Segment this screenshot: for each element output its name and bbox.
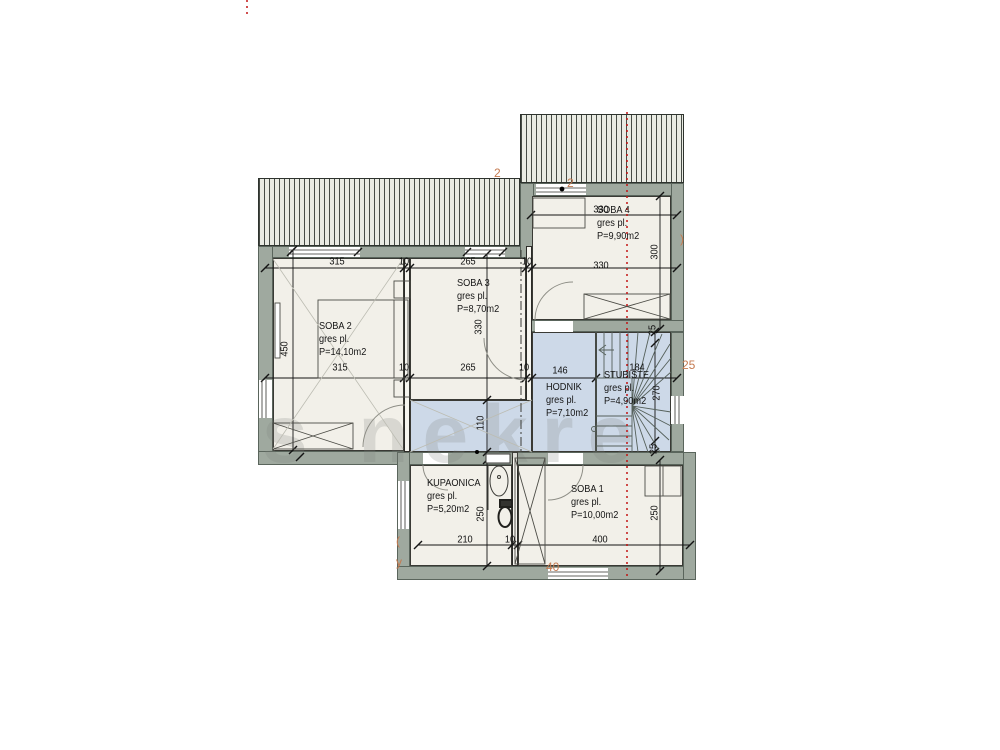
dim-label: 10 (522, 257, 532, 268)
room-label-soba3: SOBA 3gres pl.P=8,70m2 (457, 277, 499, 316)
roof-hatch-right (520, 114, 684, 183)
roof-hatch-left (258, 178, 520, 246)
room-label-soba1: SOBA 1gres pl.P=10,00m2 (571, 483, 618, 522)
annotation-remnant: 2 (567, 176, 574, 190)
window-top-soba2 (289, 247, 360, 257)
dim-label: 315 (329, 257, 344, 268)
dim-label: 146 (552, 366, 567, 377)
dim-label: 10 (519, 363, 529, 374)
dim-label: 10 (399, 363, 409, 374)
door-opening-soba4 (535, 321, 573, 332)
dim-label: 315 (332, 363, 347, 374)
door-opening-kupaonica (423, 453, 448, 464)
annotation-remnant: 40 (546, 560, 559, 574)
room-label-stubiste: STUBIŠTEgres pl.P=4,90m2 (604, 369, 649, 408)
dim-label: 400 (592, 535, 607, 546)
dim-label: 25 (649, 444, 660, 454)
dim-label: 330 (593, 205, 608, 216)
wall-right-lower (683, 452, 696, 580)
dim-label: 210 (457, 535, 472, 546)
dim-label: 300 (650, 244, 661, 259)
dim-label: 10 (399, 257, 409, 268)
room-label-kupaonica: KUPAONICAgres pl.P=5,20m2 (427, 477, 481, 516)
room-label-soba2: SOBA 2gres pl.P=14,10m2 (319, 320, 366, 359)
wall-right-upper (671, 183, 684, 332)
dim-label: 25 (648, 325, 659, 335)
annotation-remnant: 2 (494, 166, 501, 180)
room-floor-hodnik-ext (410, 400, 532, 452)
annotation-remnant: ) (680, 232, 684, 246)
annotation-remnant: y (396, 555, 402, 569)
wall-right-stairs (671, 332, 684, 452)
room-label-hodnik: HODNIKgres pl.P=7,10m2 (546, 381, 588, 420)
dim-label: 265 (460, 257, 475, 268)
annotation-remnant: 25 (682, 358, 695, 372)
floor-plan-canvas: s nekre (0, 0, 1000, 750)
dim-label: 330 (593, 261, 608, 272)
dim-label: 184 (629, 363, 644, 374)
window-left-soba2 (259, 380, 272, 418)
wall-bottom-soba2 (258, 451, 420, 465)
dim-label: 330 (474, 319, 485, 334)
dim-label: 110 (476, 416, 487, 431)
opening-right-stairs (671, 396, 684, 424)
dim-label: 250 (476, 506, 487, 521)
window-top-soba3 (465, 247, 505, 257)
dim-label: 265 (460, 363, 475, 374)
wall-left (258, 246, 273, 465)
door-opening-soba1 (548, 453, 583, 464)
annotation-remnant: ( (396, 534, 400, 548)
dim-label: 270 (652, 385, 663, 400)
dim-label: 10 (505, 535, 515, 546)
dim-label: 450 (280, 341, 291, 356)
window-left-kupaonica (398, 481, 409, 529)
dim-label: 250 (650, 505, 661, 520)
window-top-soba4 (536, 184, 586, 195)
